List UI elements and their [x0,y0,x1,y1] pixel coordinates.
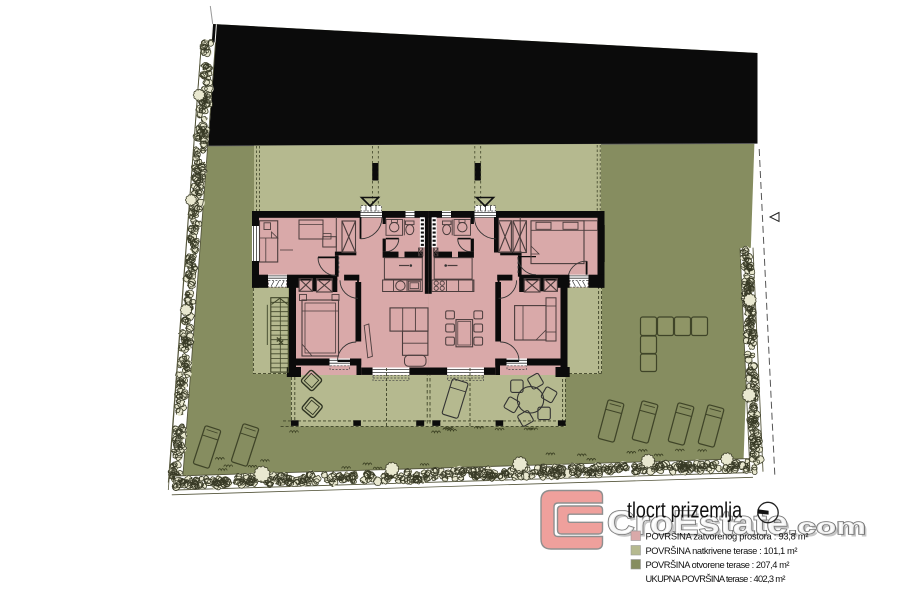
svg-text:UKUPNA POVRŠINA terase : 402,3: UKUPNA POVRŠINA terase : 402,3 m² [646,574,786,584]
svg-text:POVRŠINA zatvorenog prostora :: POVRŠINA zatvorenog prostora : 93,8 m² [646,532,809,542]
svg-text:POVRŠINA otvorene terase : 207: POVRŠINA otvorene terase : 207,4 m² [646,560,790,570]
svg-text:POVRŠINA natkrivene terase : 1: POVRŠINA natkrivene terase : 101,1 m² [646,546,798,556]
svg-text:tlocrt prizemlja: tlocrt prizemlja [627,498,742,523]
